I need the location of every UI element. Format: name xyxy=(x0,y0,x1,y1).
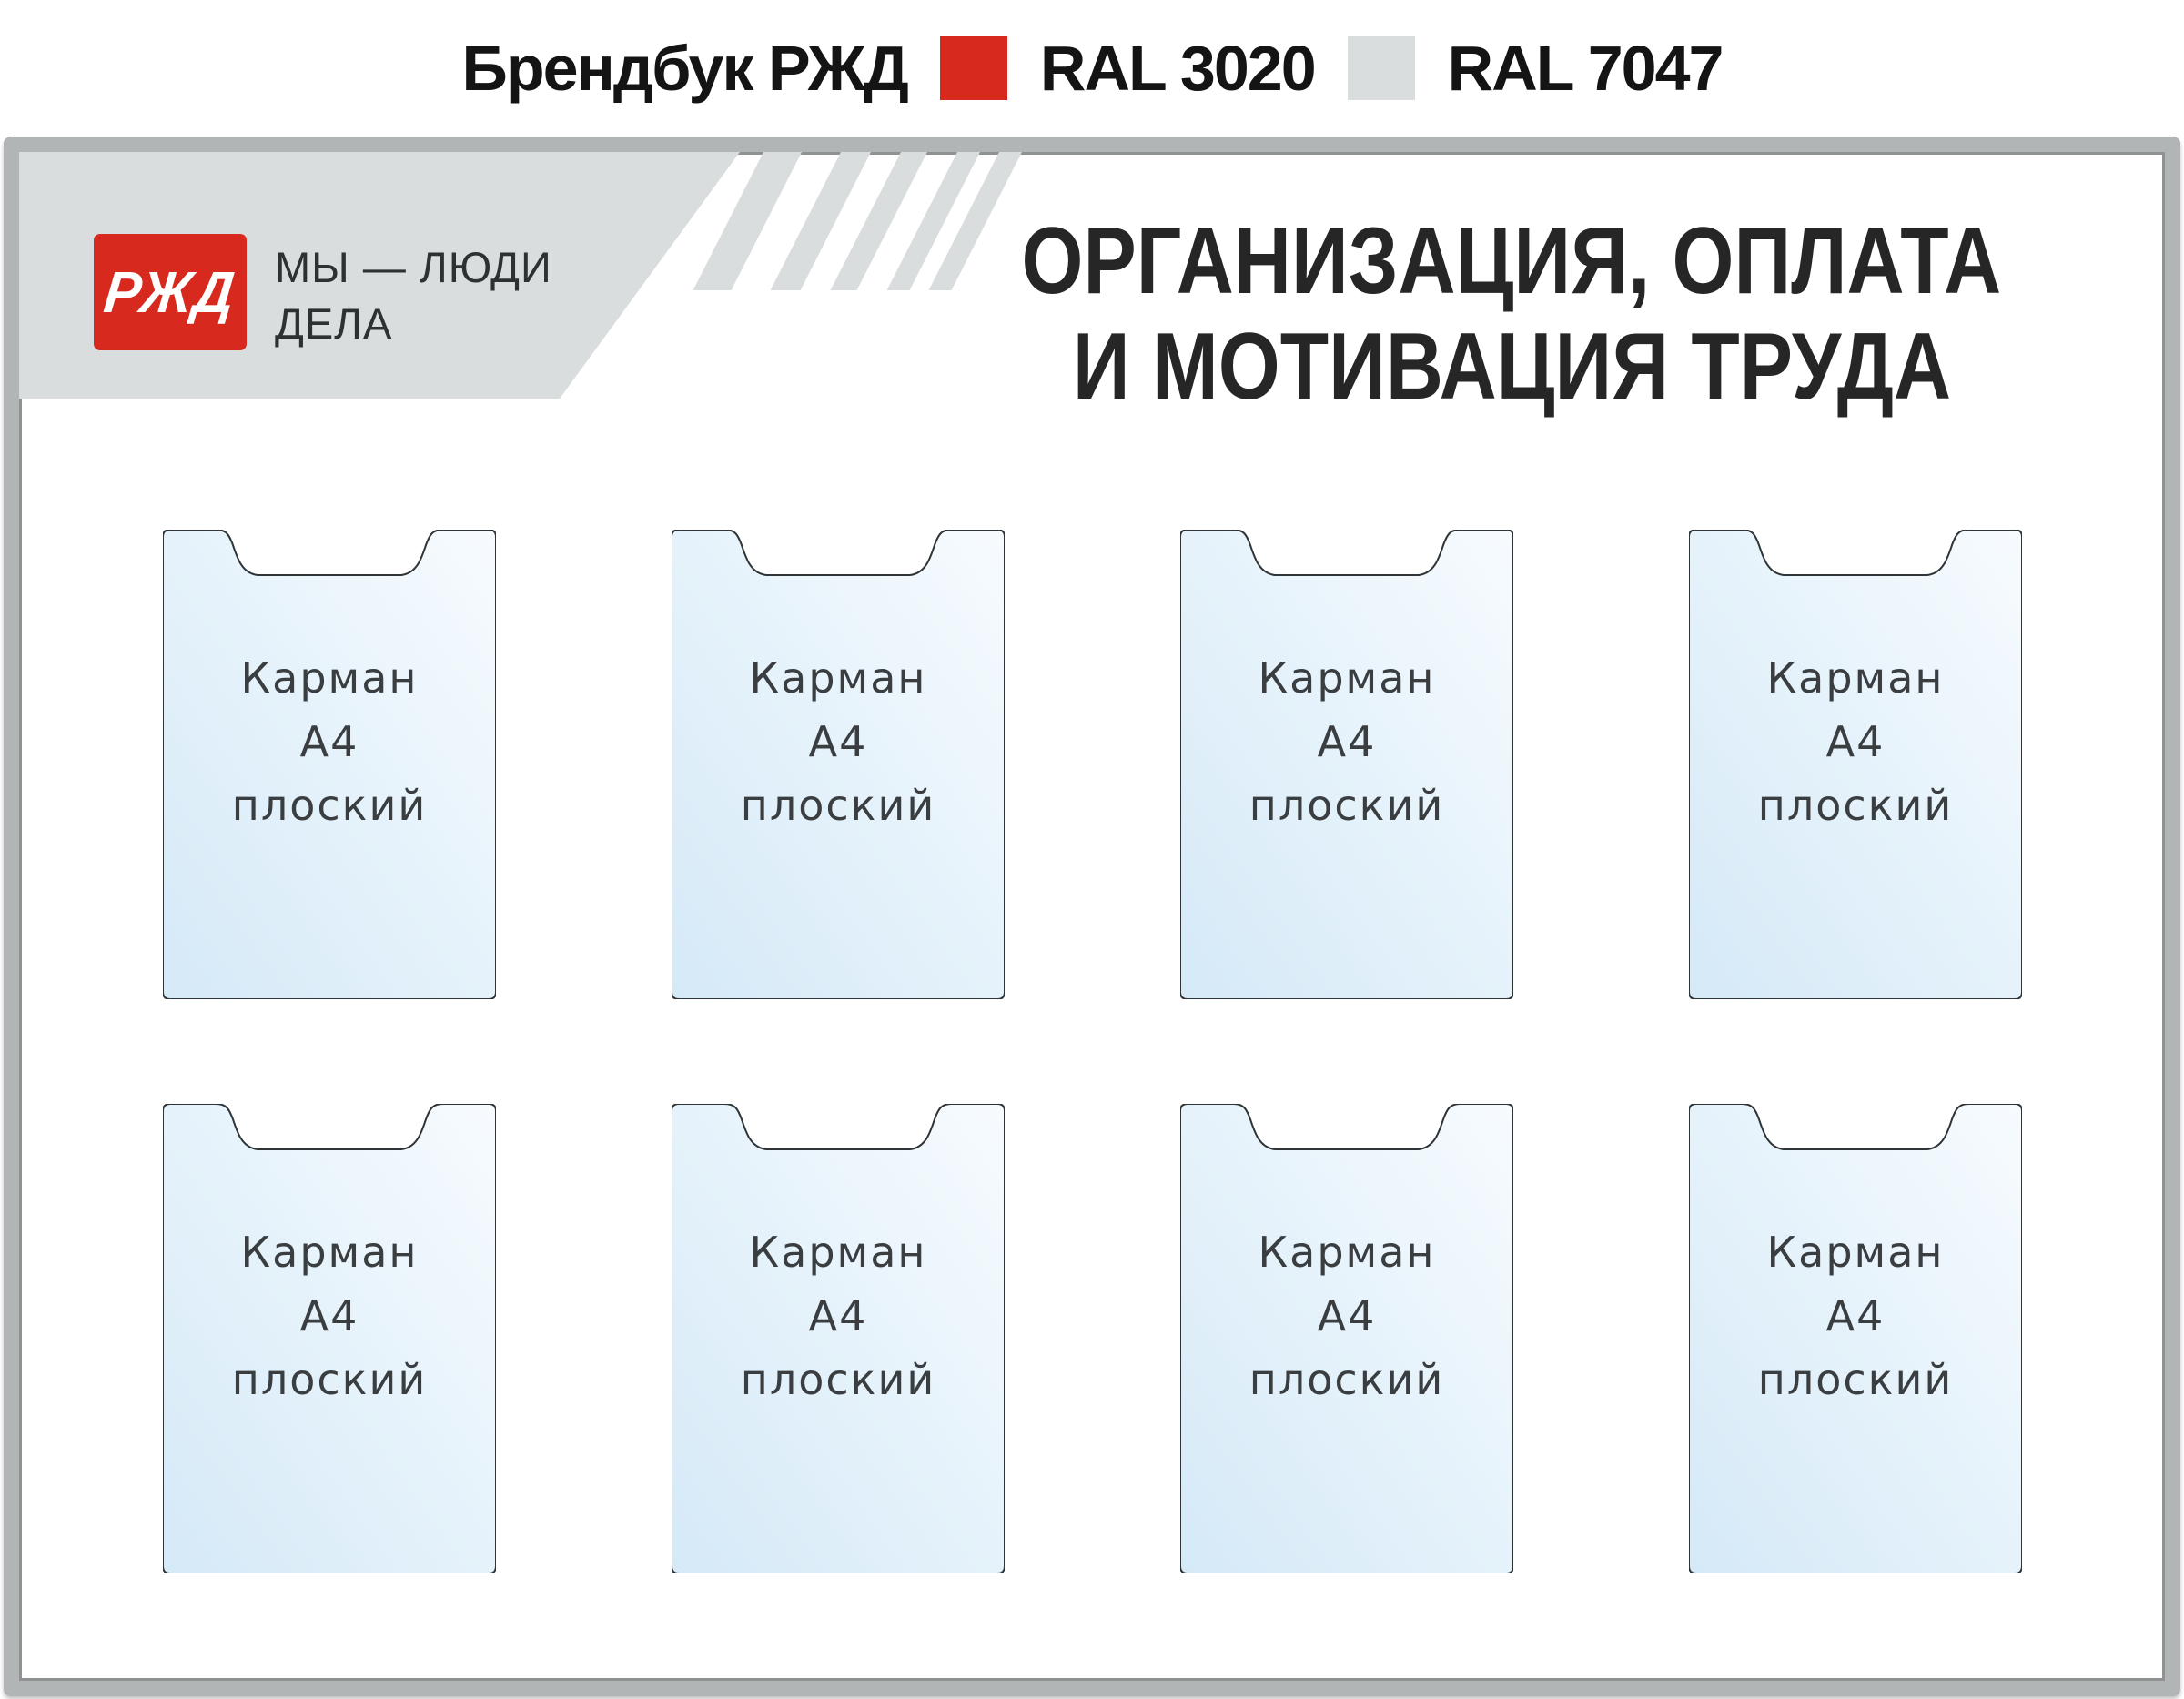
ral-7047-swatch xyxy=(1348,36,1415,100)
pocket-label-line: Карман xyxy=(1180,646,1513,710)
board-title-line-2: И МОТИВАЦИЯ ТРУДА xyxy=(1072,314,1950,420)
pocket-label: Карман А4 плоский xyxy=(672,646,1005,837)
pocket-a4-flat: Карман А4 плоский xyxy=(1689,1104,2022,1573)
pocket-label-line: Карман xyxy=(672,1220,1005,1284)
pocket-a4-flat: Карман А4 плоский xyxy=(672,1104,1005,1573)
pocket-label-line: Карман xyxy=(672,646,1005,710)
pocket-a4-flat: Карман А4 плоский xyxy=(1180,1104,1513,1573)
pocket-label: Карман А4 плоский xyxy=(1180,646,1513,837)
info-board: РЖД МЫ — ЛЮДИ ДЕЛА ОРГАНИЗАЦИЯ, ОПЛАТА И… xyxy=(19,152,2165,1681)
slogan-line: ДЕЛА xyxy=(275,296,552,352)
pocket-label-line: Карман xyxy=(1689,1220,2022,1284)
brandbook-label: Брендбук РЖД xyxy=(462,32,907,105)
pocket-label-line: плоский xyxy=(1180,774,1513,837)
pocket-label: Карман А4 плоский xyxy=(1180,1220,1513,1411)
pocket-label-line: плоский xyxy=(1180,1348,1513,1411)
pocket-label-line: Карман xyxy=(163,646,496,710)
pocket-label-line: А4 xyxy=(163,1284,496,1348)
pocket-label-line: Карман xyxy=(163,1220,496,1284)
pocket-label: Карман А4 плоский xyxy=(1689,1220,2022,1411)
pocket-label-line: плоский xyxy=(1689,774,2022,837)
rzd-logo-text: РЖД xyxy=(101,258,239,326)
pocket-label-line: Карман xyxy=(1689,646,2022,710)
pocket-label-line: Карман xyxy=(1180,1220,1513,1284)
pocket-label-line: плоский xyxy=(1689,1348,2022,1411)
pocket-label-line: плоский xyxy=(163,1348,496,1411)
spec-header: Брендбук РЖД RAL 3020 RAL 7047 xyxy=(0,0,2184,137)
rzd-logo: РЖД xyxy=(94,234,247,350)
pocket-label-line: А4 xyxy=(1180,1284,1513,1348)
ral-3020-swatch xyxy=(940,36,1007,100)
pocket-row-2: Карман А4 плоский Карман А4 плоский xyxy=(163,1104,2022,1573)
pocket-a4-flat: Карман А4 плоский xyxy=(163,1104,496,1573)
board-title-line-1: ОРГАНИЗАЦИЯ, ОПЛАТА xyxy=(1022,208,2002,314)
pocket-label-line: А4 xyxy=(1180,710,1513,774)
pocket-label-line: А4 xyxy=(1689,710,2022,774)
pocket-a4-flat: Карман А4 плоский xyxy=(1689,530,2022,999)
pocket-label-line: А4 xyxy=(672,710,1005,774)
slogan: МЫ — ЛЮДИ ДЕЛА xyxy=(275,239,552,352)
pocket-label: Карман А4 плоский xyxy=(163,1220,496,1411)
pocket-label-line: плоский xyxy=(672,1348,1005,1411)
info-board-frame: РЖД МЫ — ЛЮДИ ДЕЛА ОРГАНИЗАЦИЯ, ОПЛАТА И… xyxy=(4,137,2180,1696)
pocket-label-line: А4 xyxy=(163,710,496,774)
pocket-label: Карман А4 плоский xyxy=(672,1220,1005,1411)
ral-7047-label: RAL 7047 xyxy=(1448,32,1723,105)
pocket-a4-flat: Карман А4 плоский xyxy=(672,530,1005,999)
pocket-label: Карман А4 плоский xyxy=(1689,646,2022,837)
slogan-line: МЫ — ЛЮДИ xyxy=(275,239,552,296)
pocket-a4-flat: Карман А4 плоский xyxy=(1180,530,1513,999)
pocket-row-1: Карман А4 плоский Карман А4 плоский xyxy=(163,530,2022,999)
pocket-label-line: А4 xyxy=(672,1284,1005,1348)
pocket-label-line: плоский xyxy=(672,774,1005,837)
pocket-label: Карман А4 плоский xyxy=(163,646,496,837)
board-title: ОРГАНИЗАЦИЯ, ОПЛАТА И МОТИВАЦИЯ ТРУДА xyxy=(875,208,2149,420)
pocket-a4-flat: Карман А4 плоский xyxy=(163,530,496,999)
pocket-label-line: А4 xyxy=(1689,1284,2022,1348)
ral-3020-label: RAL 3020 xyxy=(1040,32,1315,105)
brandbook-sheet: Брендбук РЖД RAL 3020 RAL 7047 РЖД МЫ — … xyxy=(0,0,2184,1699)
pocket-label-line: плоский xyxy=(163,774,496,837)
